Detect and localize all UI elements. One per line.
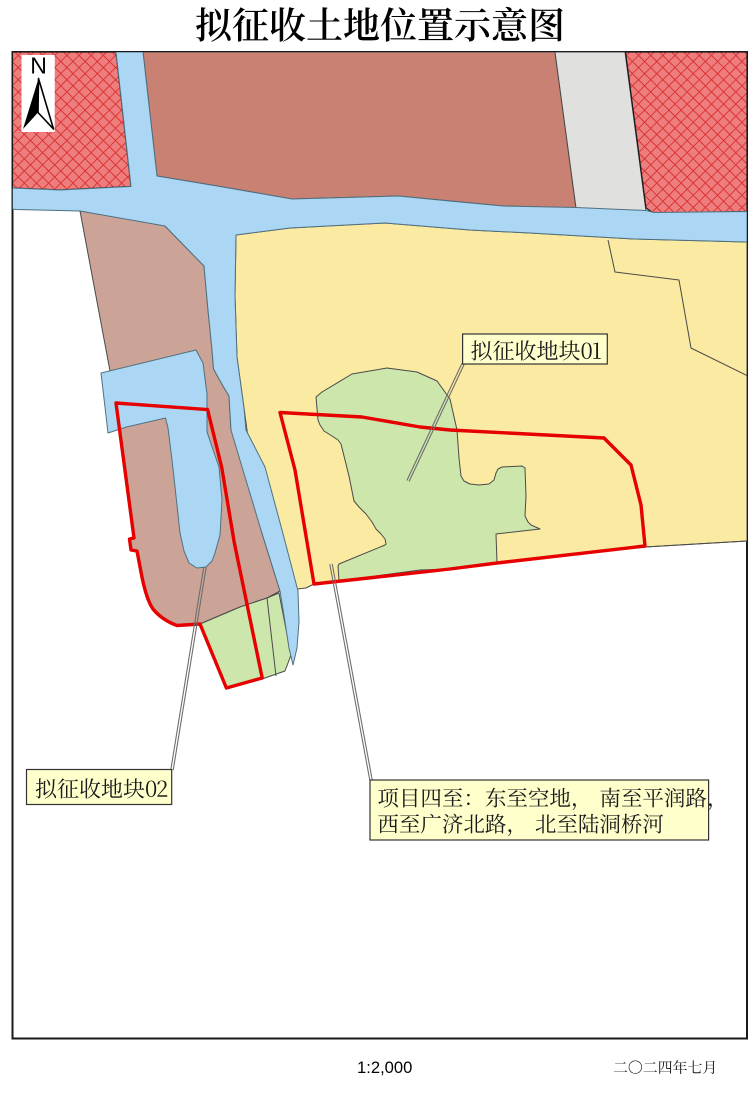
svg-text:1:2,000: 1:2,000 <box>357 1058 412 1077</box>
svg-text:N: N <box>30 53 47 79</box>
